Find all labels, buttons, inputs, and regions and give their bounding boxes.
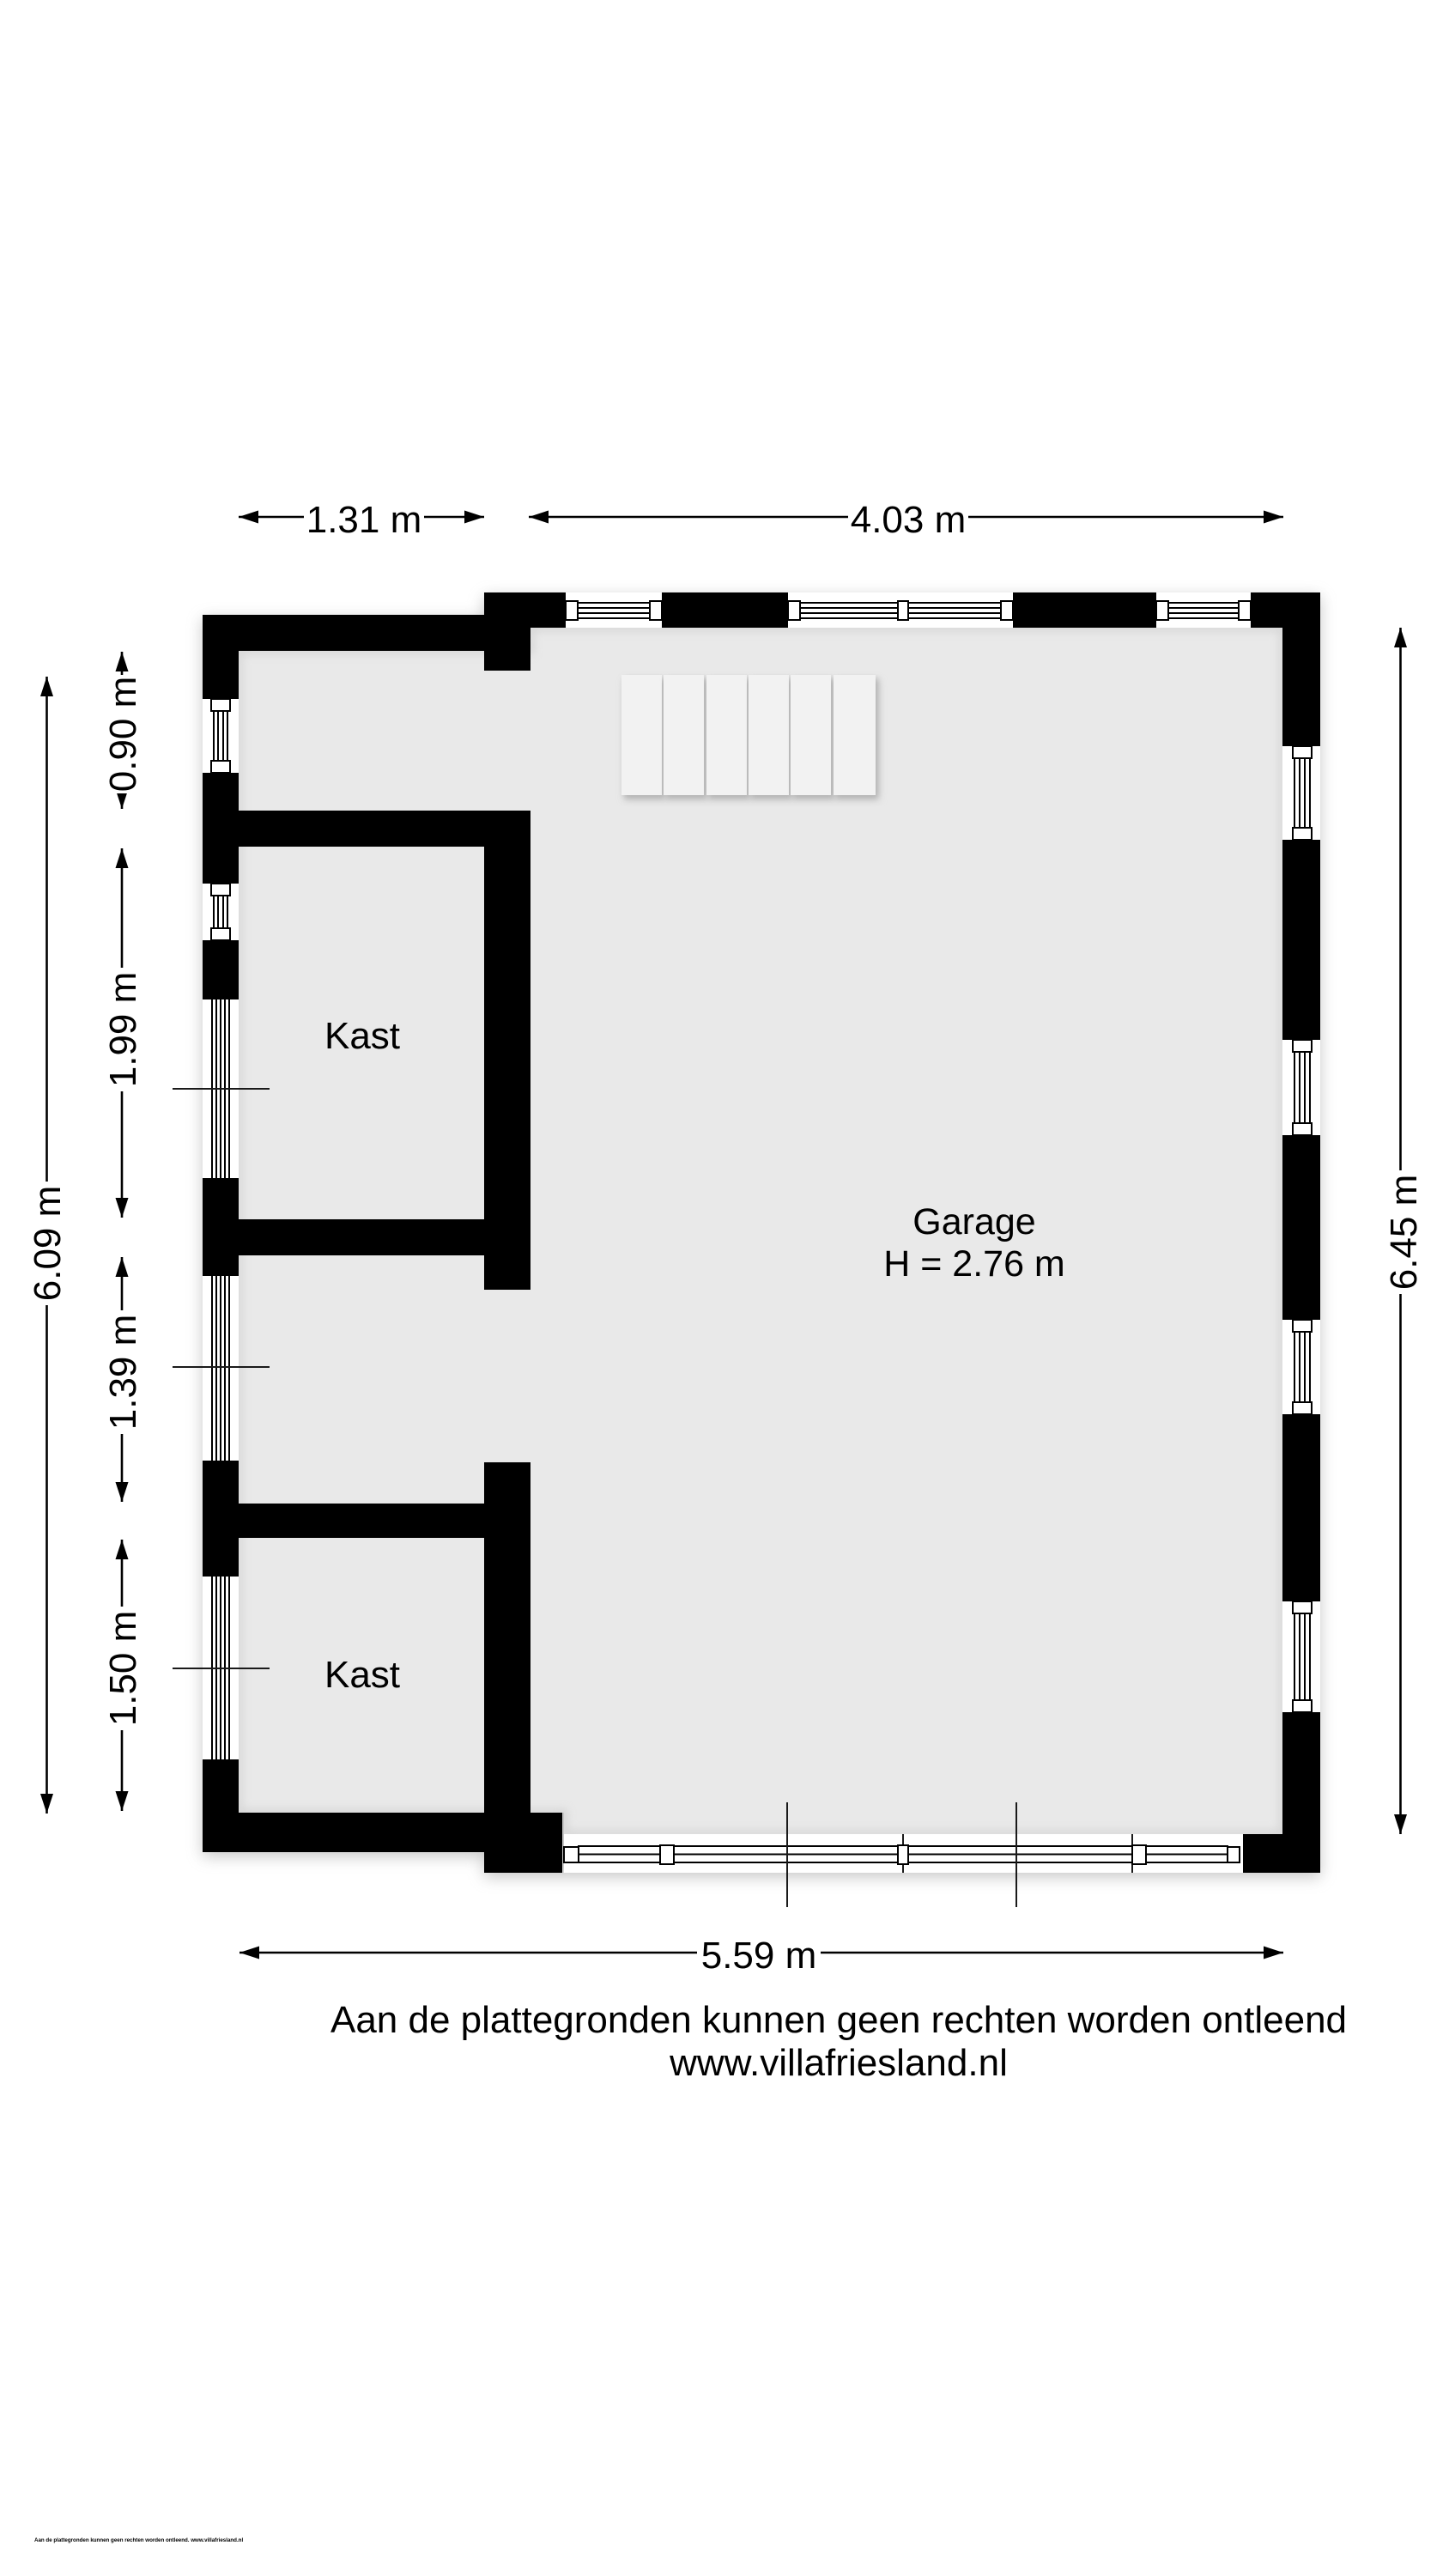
svg-text:1.31 m: 1.31 m (306, 499, 422, 541)
svg-text:Kast: Kast (324, 1654, 400, 1696)
svg-text:1.50 m: 1.50 m (102, 1611, 144, 1727)
svg-text:6.45 m: 6.45 m (1383, 1175, 1425, 1291)
svg-text:Kast: Kast (324, 1015, 400, 1057)
svg-text:www.villafriesland.nl: www.villafriesland.nl (669, 2042, 1008, 2084)
svg-text:Garage: Garage (912, 1201, 1035, 1242)
svg-text:5.59 m: 5.59 m (701, 1935, 817, 1977)
svg-text:6.09 m: 6.09 m (27, 1186, 69, 1302)
svg-text:Aan de plattegronden kunnen ge: Aan de plattegronden kunnen geen rechten… (330, 1999, 1347, 2041)
svg-text:0.90 m: 0.90 m (102, 677, 144, 793)
svg-text:H = 2.76 m: H = 2.76 m (883, 1243, 1065, 1285)
svg-text:Aan de plattegronden kunnen ge: Aan de plattegronden kunnen geen rechten… (34, 2537, 243, 2543)
svg-text:4.03 m: 4.03 m (851, 499, 967, 541)
svg-text:1.99 m: 1.99 m (102, 972, 144, 1088)
svg-text:1.39 m: 1.39 m (102, 1315, 144, 1431)
